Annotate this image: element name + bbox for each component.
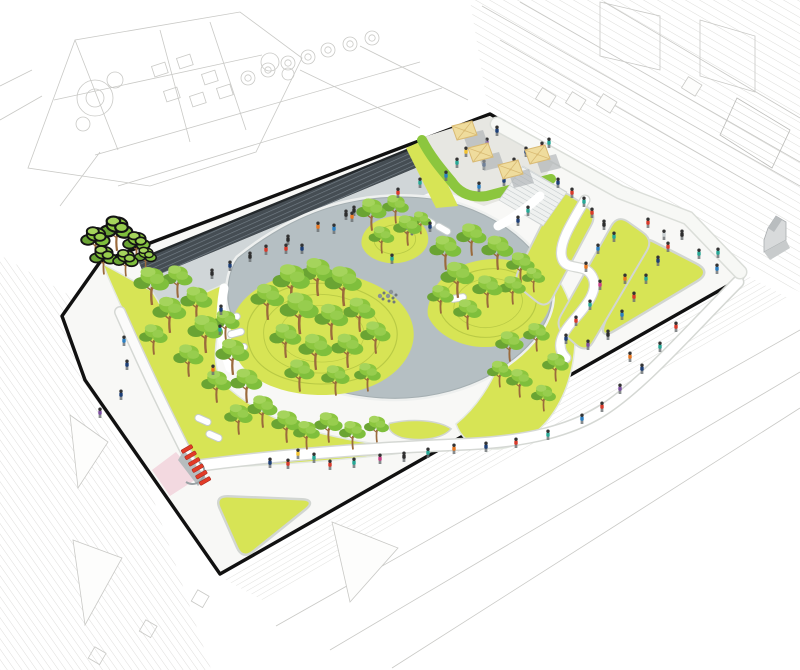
lawn-sliver: [390, 421, 450, 438]
site-plan-svg: [0, 0, 800, 670]
park-masterplan-rendering: [0, 0, 800, 670]
